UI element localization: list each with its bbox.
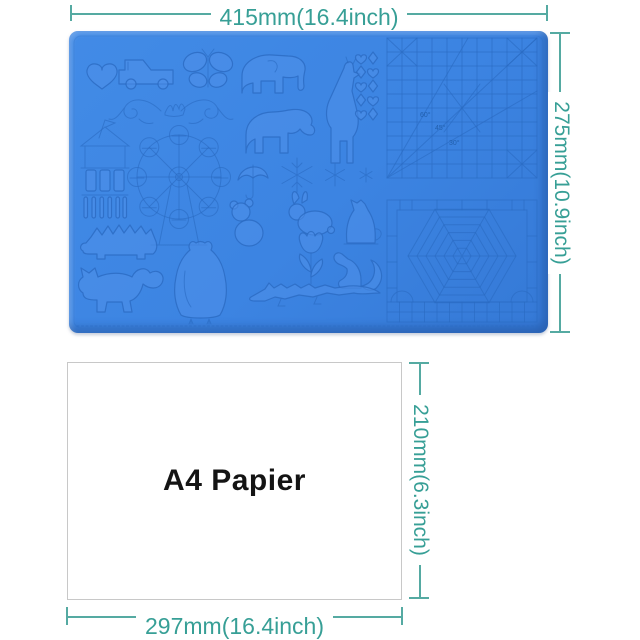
elephant-shape — [242, 55, 305, 93]
snowflake-shapes — [282, 158, 372, 192]
fox-shape — [79, 268, 164, 312]
dimension-tick — [409, 597, 429, 599]
dimension-tick — [550, 331, 570, 333]
umbrella-shape — [238, 165, 268, 199]
teddy-bear-shape — [230, 199, 263, 246]
butterfly-shape — [180, 49, 235, 90]
owl-shape — [175, 242, 227, 325]
mat-width-label: 415mm(16.4inch) — [211, 3, 408, 31]
mat-pattern-svg: 60° 45° 30° — [69, 31, 548, 333]
mat-width-dimension: 415mm(16.4inch) — [70, 3, 548, 31]
hearts-and-diamonds-shapes — [356, 52, 379, 120]
spider-web-panel — [387, 200, 537, 322]
paper-height-dimension: 210mm(6.3inch) — [407, 380, 433, 580]
ferris-wheel-shape — [128, 126, 231, 246]
giraffe-shape — [327, 57, 360, 163]
tulip-shape — [299, 232, 322, 285]
heart-shape — [87, 64, 117, 89]
squirrel-shape — [334, 253, 382, 290]
hippo-shape — [246, 109, 315, 153]
hedgehog-shape — [81, 225, 157, 259]
paper-width-dimension: 297mm(16.4inch) — [67, 612, 402, 640]
angle-label-60: 60° — [420, 111, 431, 119]
rabbit-shape — [289, 192, 335, 235]
paper-height-label: 210mm(6.3inch) — [407, 395, 433, 565]
product-dimension-figure: 415mm(16.4inch) — [0, 0, 640, 640]
angle-label-30: 30° — [449, 139, 460, 147]
angle-label-45: 45° — [435, 124, 446, 132]
angle-grid-panel — [387, 38, 537, 178]
mat-height-dimension: 275mm(10.9inch) — [548, 83, 574, 283]
cat-shape — [344, 200, 381, 244]
a4-paper: A4 Papier — [67, 362, 402, 600]
mat-height-label: 275mm(10.9inch) — [548, 92, 574, 273]
crocodile-shape — [250, 283, 380, 306]
floral-flourish-shape — [109, 100, 233, 124]
silicone-mat: 60° 45° 30° — [69, 31, 548, 333]
pickup-truck-shape — [119, 60, 173, 89]
carousel-chimes-shape — [81, 120, 129, 218]
paper-width-label: 297mm(16.4inch) — [136, 612, 333, 640]
a4-paper-label: A4 Papier — [163, 464, 306, 498]
